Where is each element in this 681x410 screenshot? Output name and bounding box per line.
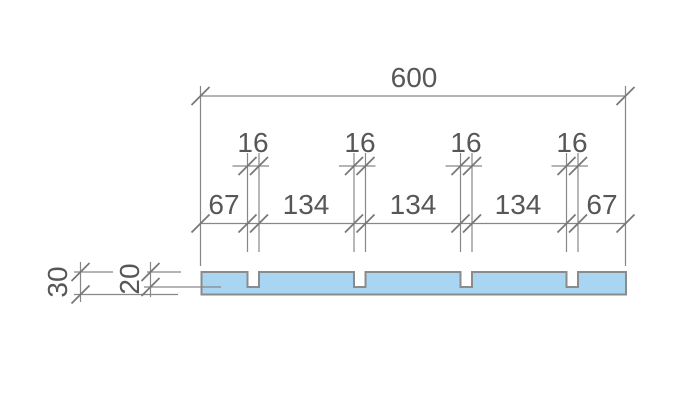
- dim-position-chain: 67 134 134 134 67: [192, 189, 635, 233]
- chain-label-left-67: 67: [208, 189, 239, 220]
- dim-label-groove-width-4: 16: [556, 127, 587, 158]
- drawing-canvas: 600 16 16 16 16: [0, 0, 681, 410]
- dim-groove-width-4: 16: [552, 127, 589, 252]
- dim-label-groove-width-2: 16: [344, 127, 375, 158]
- panel-profile: [202, 272, 627, 295]
- chain-label-134-1: 134: [283, 189, 330, 220]
- dim-label-groove-width-3: 16: [450, 127, 481, 158]
- dim-label-thickness: 30: [42, 266, 73, 297]
- chain-label-right-67: 67: [586, 189, 617, 220]
- dim-groove-width-3: 16: [446, 127, 483, 252]
- panel-section-drawing: 600 16 16 16 16: [0, 0, 681, 410]
- chain-label-134-2: 134: [390, 189, 437, 220]
- chain-label-134-3: 134: [495, 189, 542, 220]
- dim-label-overall-width: 600: [391, 62, 438, 93]
- dim-label-groove-depth: 20: [114, 263, 145, 294]
- dim-groove-width-2: 16: [339, 127, 376, 252]
- dim-label-groove-width-1: 16: [237, 127, 268, 158]
- dim-thickness: 30: [42, 262, 178, 304]
